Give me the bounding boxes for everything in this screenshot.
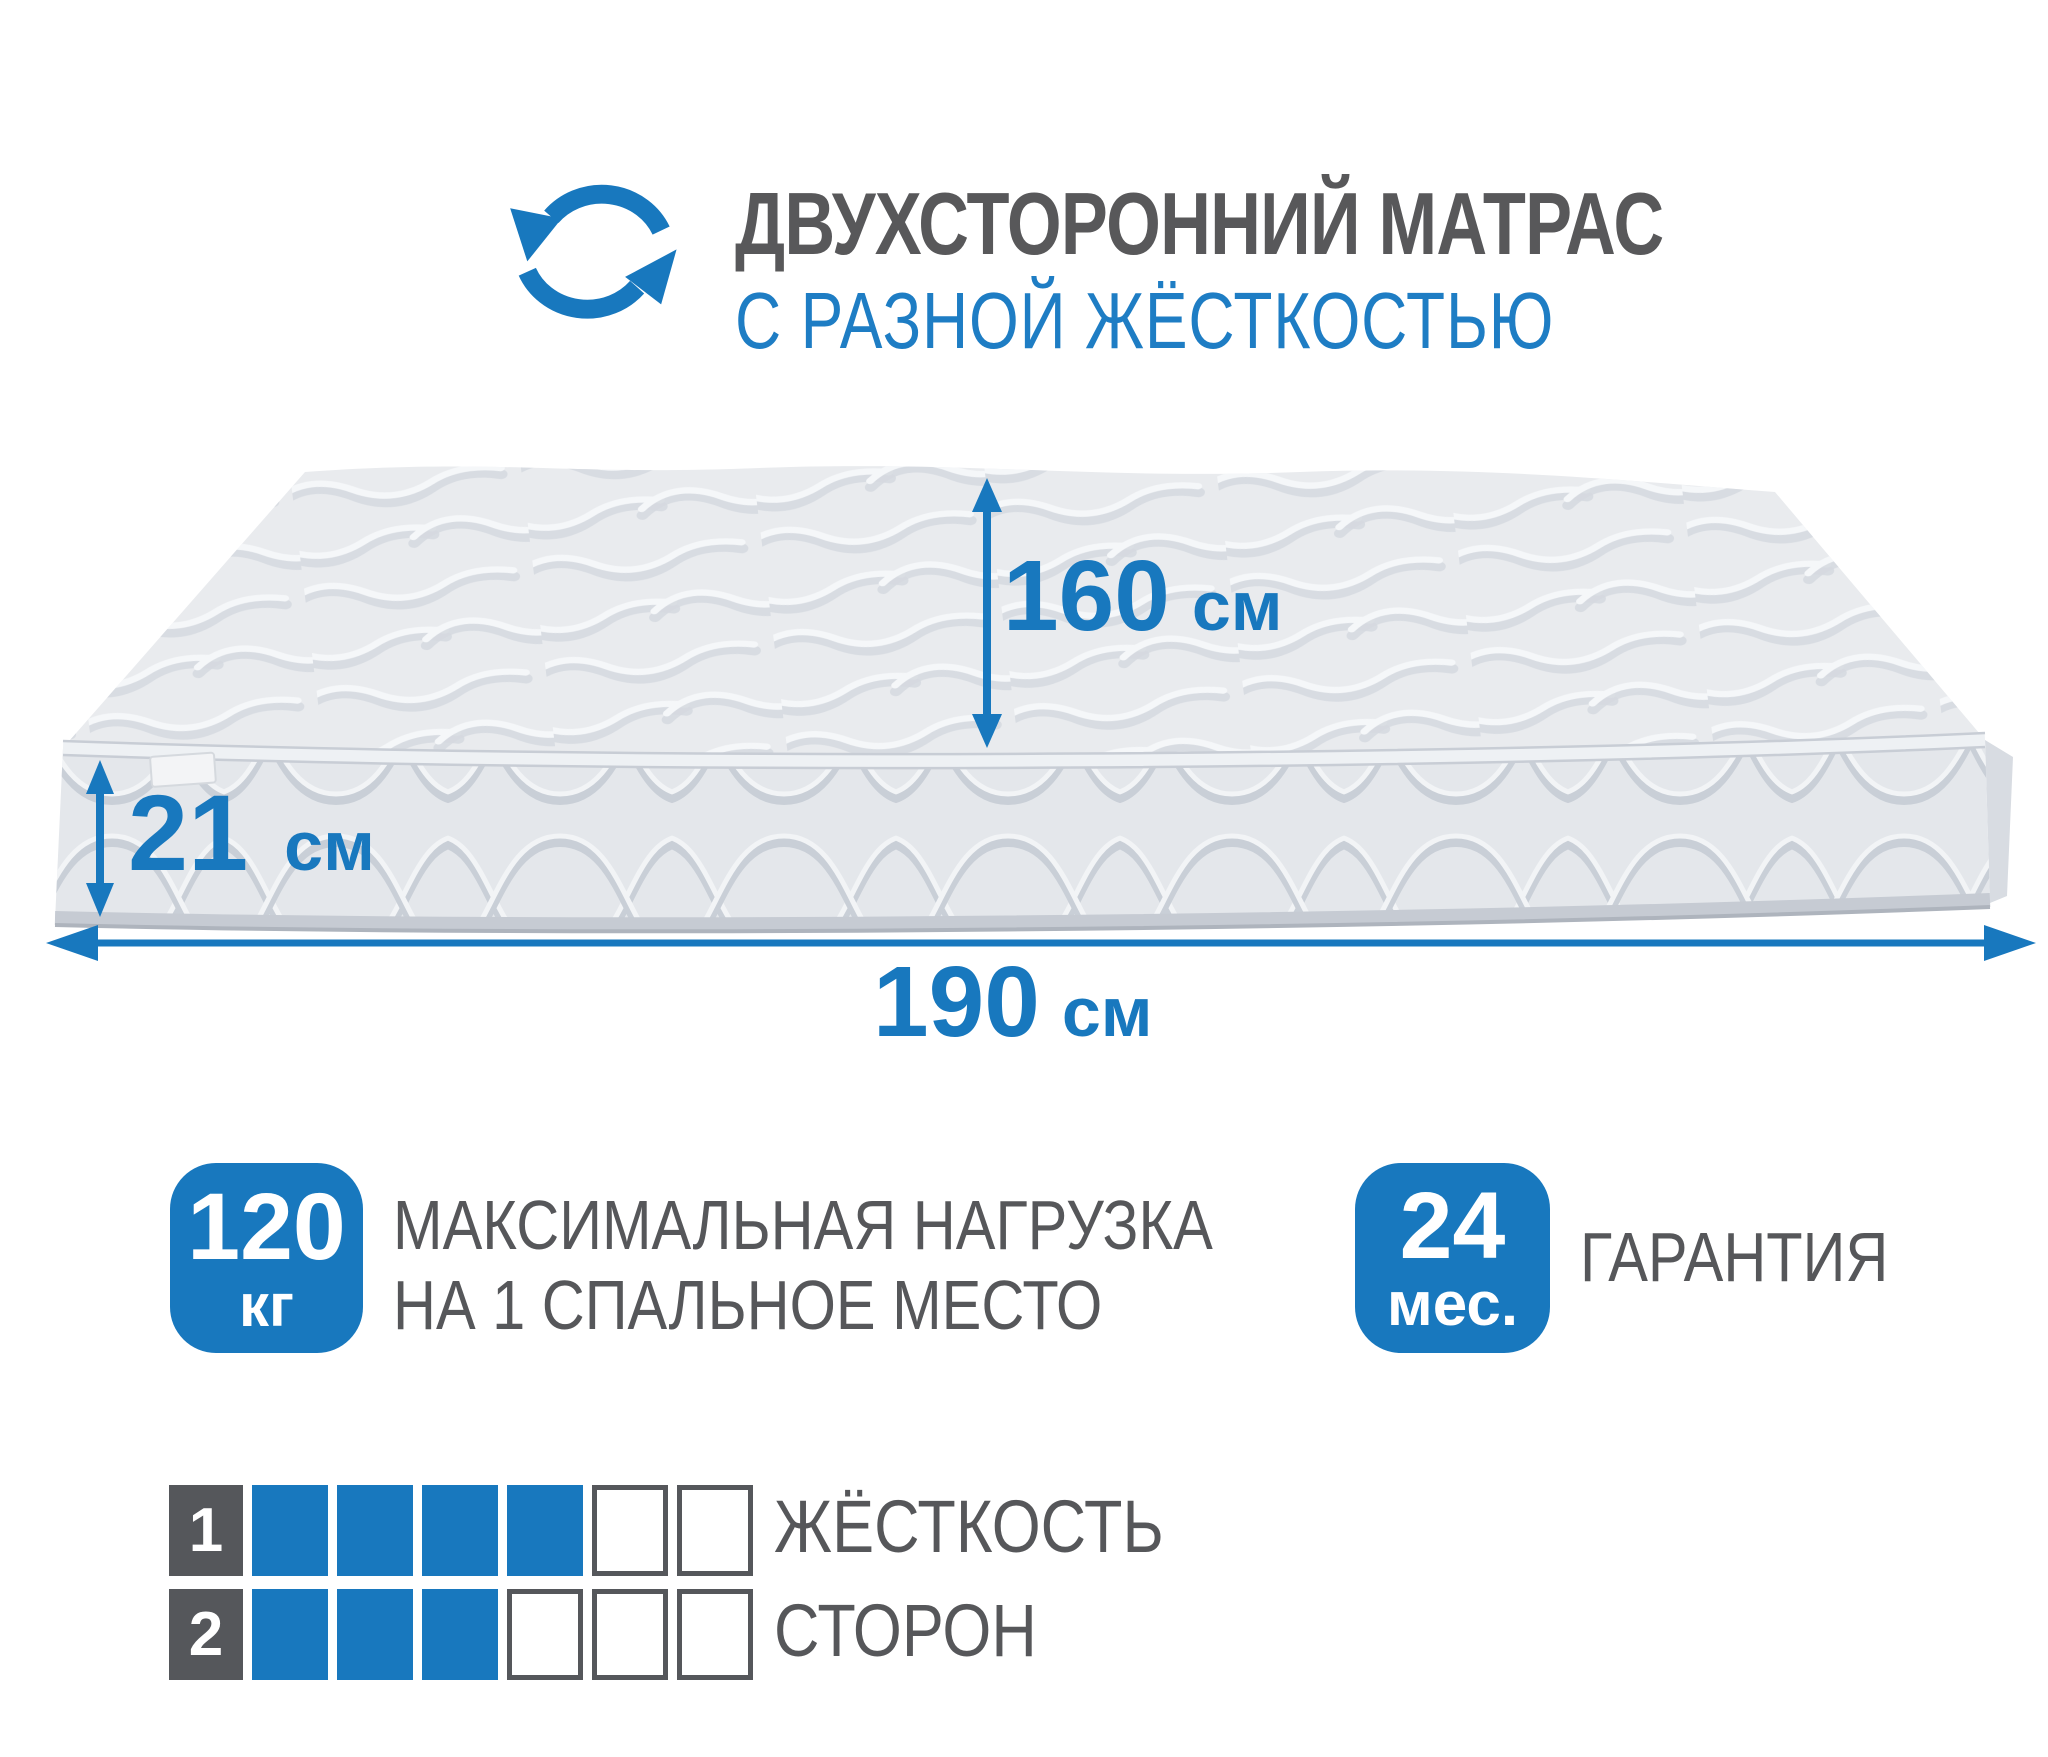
firmness-row: 1	[169, 1485, 753, 1576]
warranty-unit: мес.	[1387, 1276, 1518, 1335]
length-value: 190	[873, 946, 1040, 1058]
width-unit: см	[1192, 567, 1283, 645]
firmness-caption-line1: ЖЁСТКОСТЬ	[774, 1490, 1164, 1564]
height-label: 21см	[128, 779, 375, 887]
firmness-cell	[592, 1589, 668, 1680]
firmness-cell	[422, 1589, 498, 1680]
height-unit: см	[284, 807, 375, 885]
firmness-grid: 12	[169, 1485, 753, 1680]
max-load-value: 120	[187, 1182, 346, 1272]
max-load-badge: 120 кг	[170, 1163, 363, 1353]
mattress-infographic: ДВУХСТОРОННИЙ МАТРАС С РАЗНОЙ ЖЁСТКОСТЬЮ…	[0, 0, 2048, 1757]
page-title: ДВУХСТОРОННИЙ МАТРАС	[735, 180, 1663, 268]
length-unit: см	[1062, 973, 1153, 1051]
firmness-cell	[252, 1589, 328, 1680]
firmness-caption-line2: СТОРОН	[774, 1594, 1037, 1668]
firmness-cell	[337, 1589, 413, 1680]
firmness-cell	[677, 1485, 753, 1576]
length-label: 190см	[873, 952, 1153, 1052]
firmness-cell	[422, 1485, 498, 1576]
width-label: 160см	[1003, 546, 1283, 646]
firmness-row: 2	[169, 1589, 753, 1680]
max-load-unit: кг	[239, 1277, 294, 1334]
firmness-row-label: 1	[169, 1485, 243, 1576]
firmness-cell	[252, 1485, 328, 1576]
warranty-badge: 24 мес.	[1355, 1163, 1550, 1353]
page-subtitle: С РАЗНОЙ ЖЁСТКОСТЬЮ	[735, 281, 1554, 361]
width-value: 160	[1003, 540, 1170, 652]
height-value: 21	[128, 772, 248, 893]
firmness-cell	[507, 1485, 583, 1576]
warranty-value: 24	[1400, 1181, 1506, 1271]
max-load-caption-line1: МАКСИМАЛЬНАЯ НАГРУЗКА	[393, 1190, 1213, 1260]
firmness-row-label: 2	[169, 1589, 243, 1680]
firmness-cell	[677, 1589, 753, 1680]
firmness-cell	[337, 1485, 413, 1576]
firmness-cell	[507, 1589, 583, 1680]
rotate-arrows-icon	[505, 172, 680, 332]
warranty-caption: ГАРАНТИЯ	[1580, 1222, 1888, 1292]
max-load-caption-line2: НА 1 СПАЛЬНОЕ МЕСТО	[393, 1270, 1102, 1340]
firmness-cell	[592, 1485, 668, 1576]
